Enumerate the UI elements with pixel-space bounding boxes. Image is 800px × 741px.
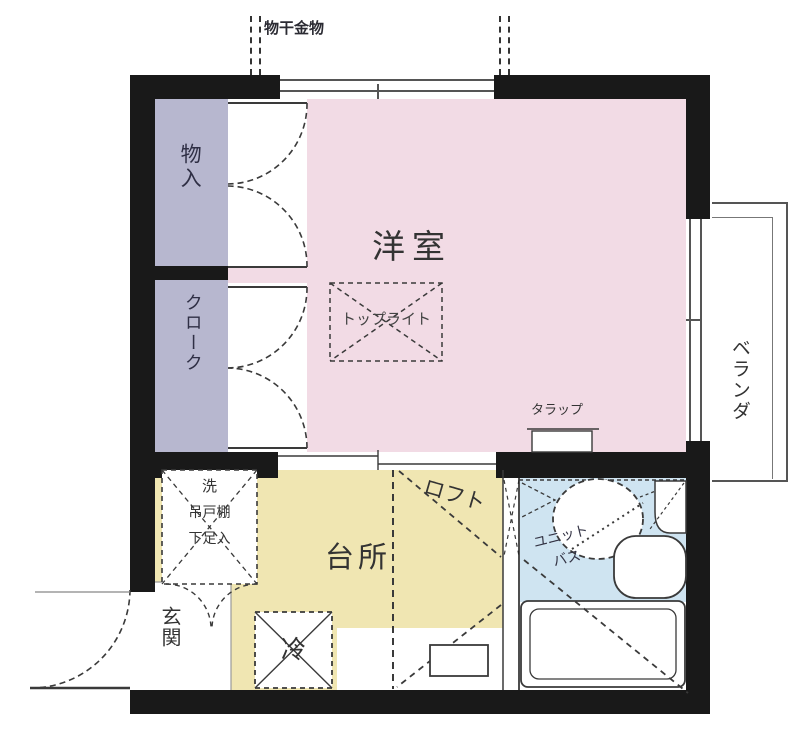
label-entrance: 玄関 (158, 606, 181, 648)
window-top (280, 75, 494, 99)
closet-door-swing-upper (228, 99, 307, 268)
wall-closet-divider (130, 266, 228, 280)
label-hanging-cupboard: 吊戸棚 (162, 505, 257, 521)
label-ladder: タラップ (531, 404, 583, 419)
label-veranda: ベランダ (728, 338, 750, 422)
wall-bottom (130, 690, 710, 714)
label-refrigerator: 冷 (255, 612, 332, 688)
room-unit-bath-lower (520, 602, 686, 690)
closet-door-swing-lower (228, 283, 307, 452)
laundry-bracket-left (250, 16, 261, 75)
label-laundry-hardware: 物干金物 (264, 20, 324, 37)
wall-right-lower (686, 441, 710, 714)
label-washer: 洗 (162, 478, 257, 495)
wall-mid-right (496, 452, 710, 478)
label-toplight: トップライト (330, 311, 442, 328)
label-kitchen: 台所 (325, 541, 391, 574)
label-cloak: クローク (181, 293, 202, 373)
label-storage: 物入 (178, 143, 202, 191)
wall-left (130, 75, 155, 592)
label-shoe-storage: 下足入 (162, 531, 257, 547)
floor-plan: 物干金物 物入 クローク 洋室 トップライト ベランダ タラップ ロフト 台所 … (0, 0, 800, 741)
label-western-room: 洋室 (372, 228, 452, 266)
wall-top-left (130, 75, 282, 99)
laundry-bracket-right (499, 16, 510, 75)
window-right (686, 219, 710, 441)
wall-mid-left (130, 452, 278, 478)
area-loft-lower (337, 628, 503, 690)
wall-top-right (494, 75, 710, 99)
wall-right-upper (686, 75, 710, 219)
